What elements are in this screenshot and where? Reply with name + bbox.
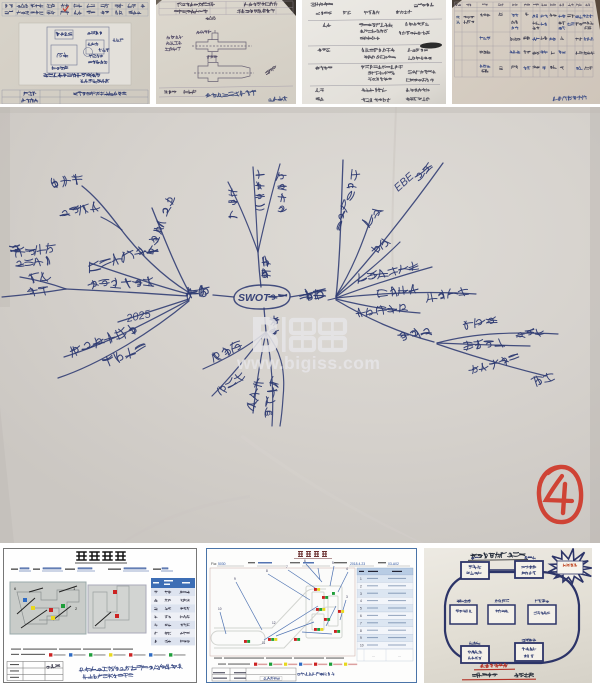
svg-text:7: 7: [360, 621, 362, 625]
svg-text:8: 8: [360, 629, 362, 633]
svg-text:2018.4.23: 2018.4.23: [350, 562, 365, 566]
svg-text:6: 6: [360, 614, 362, 618]
svg-text:4: 4: [360, 599, 362, 603]
svg-text:4: 4: [346, 567, 348, 571]
svg-text:2: 2: [360, 584, 362, 588]
svg-text:SWOT: SWOT: [238, 292, 271, 304]
svg-text:8: 8: [266, 569, 268, 573]
svg-text:1: 1: [360, 577, 362, 581]
svg-text:5030: 5030: [218, 562, 226, 566]
svg-text:12: 12: [272, 621, 276, 625]
svg-text:3: 3: [360, 592, 362, 596]
svg-text:5: 5: [332, 561, 334, 565]
svg-text:6: 6: [304, 559, 306, 563]
svg-text:EBE: EBE: [392, 170, 417, 194]
svg-text:10: 10: [360, 644, 364, 648]
svg-text:7: 7: [286, 565, 288, 569]
svg-text:www.bigiss.com: www.bigiss.com: [236, 353, 380, 373]
svg-text:F/a:: F/a:: [211, 562, 217, 566]
svg-text:...: ...: [372, 654, 375, 658]
svg-text:3: 3: [346, 595, 348, 599]
svg-text:10: 10: [218, 607, 222, 611]
svg-text:03-A02: 03-A02: [388, 562, 399, 566]
svg-text:9: 9: [360, 636, 362, 640]
svg-text:5: 5: [360, 607, 362, 611]
svg-text:...: ...: [398, 654, 401, 658]
svg-text:11: 11: [262, 641, 266, 645]
svg-text:2025: 2025: [124, 308, 152, 325]
svg-text:9: 9: [234, 577, 236, 581]
